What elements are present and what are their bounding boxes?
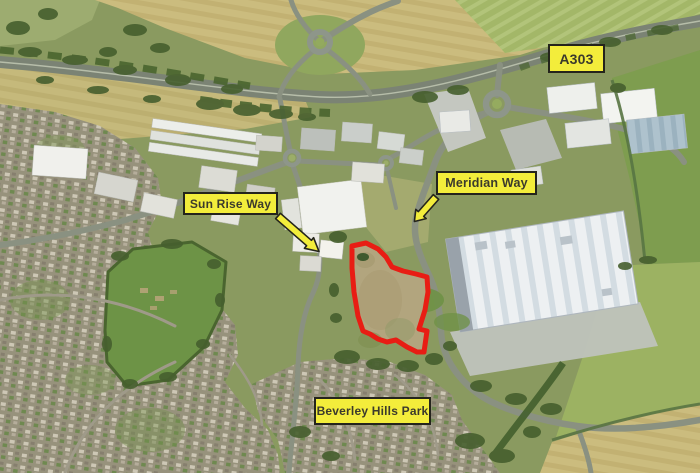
label-a303: A303 bbox=[548, 44, 605, 73]
aerial-map: A303 Sun Rise Way Meridian Way Beverley … bbox=[0, 0, 700, 473]
label-meridian-way: Meridian Way bbox=[436, 171, 537, 195]
label-beverley-hills-park: Beverley Hills Park bbox=[314, 397, 431, 425]
label-sun-rise-way: Sun Rise Way bbox=[183, 192, 278, 215]
